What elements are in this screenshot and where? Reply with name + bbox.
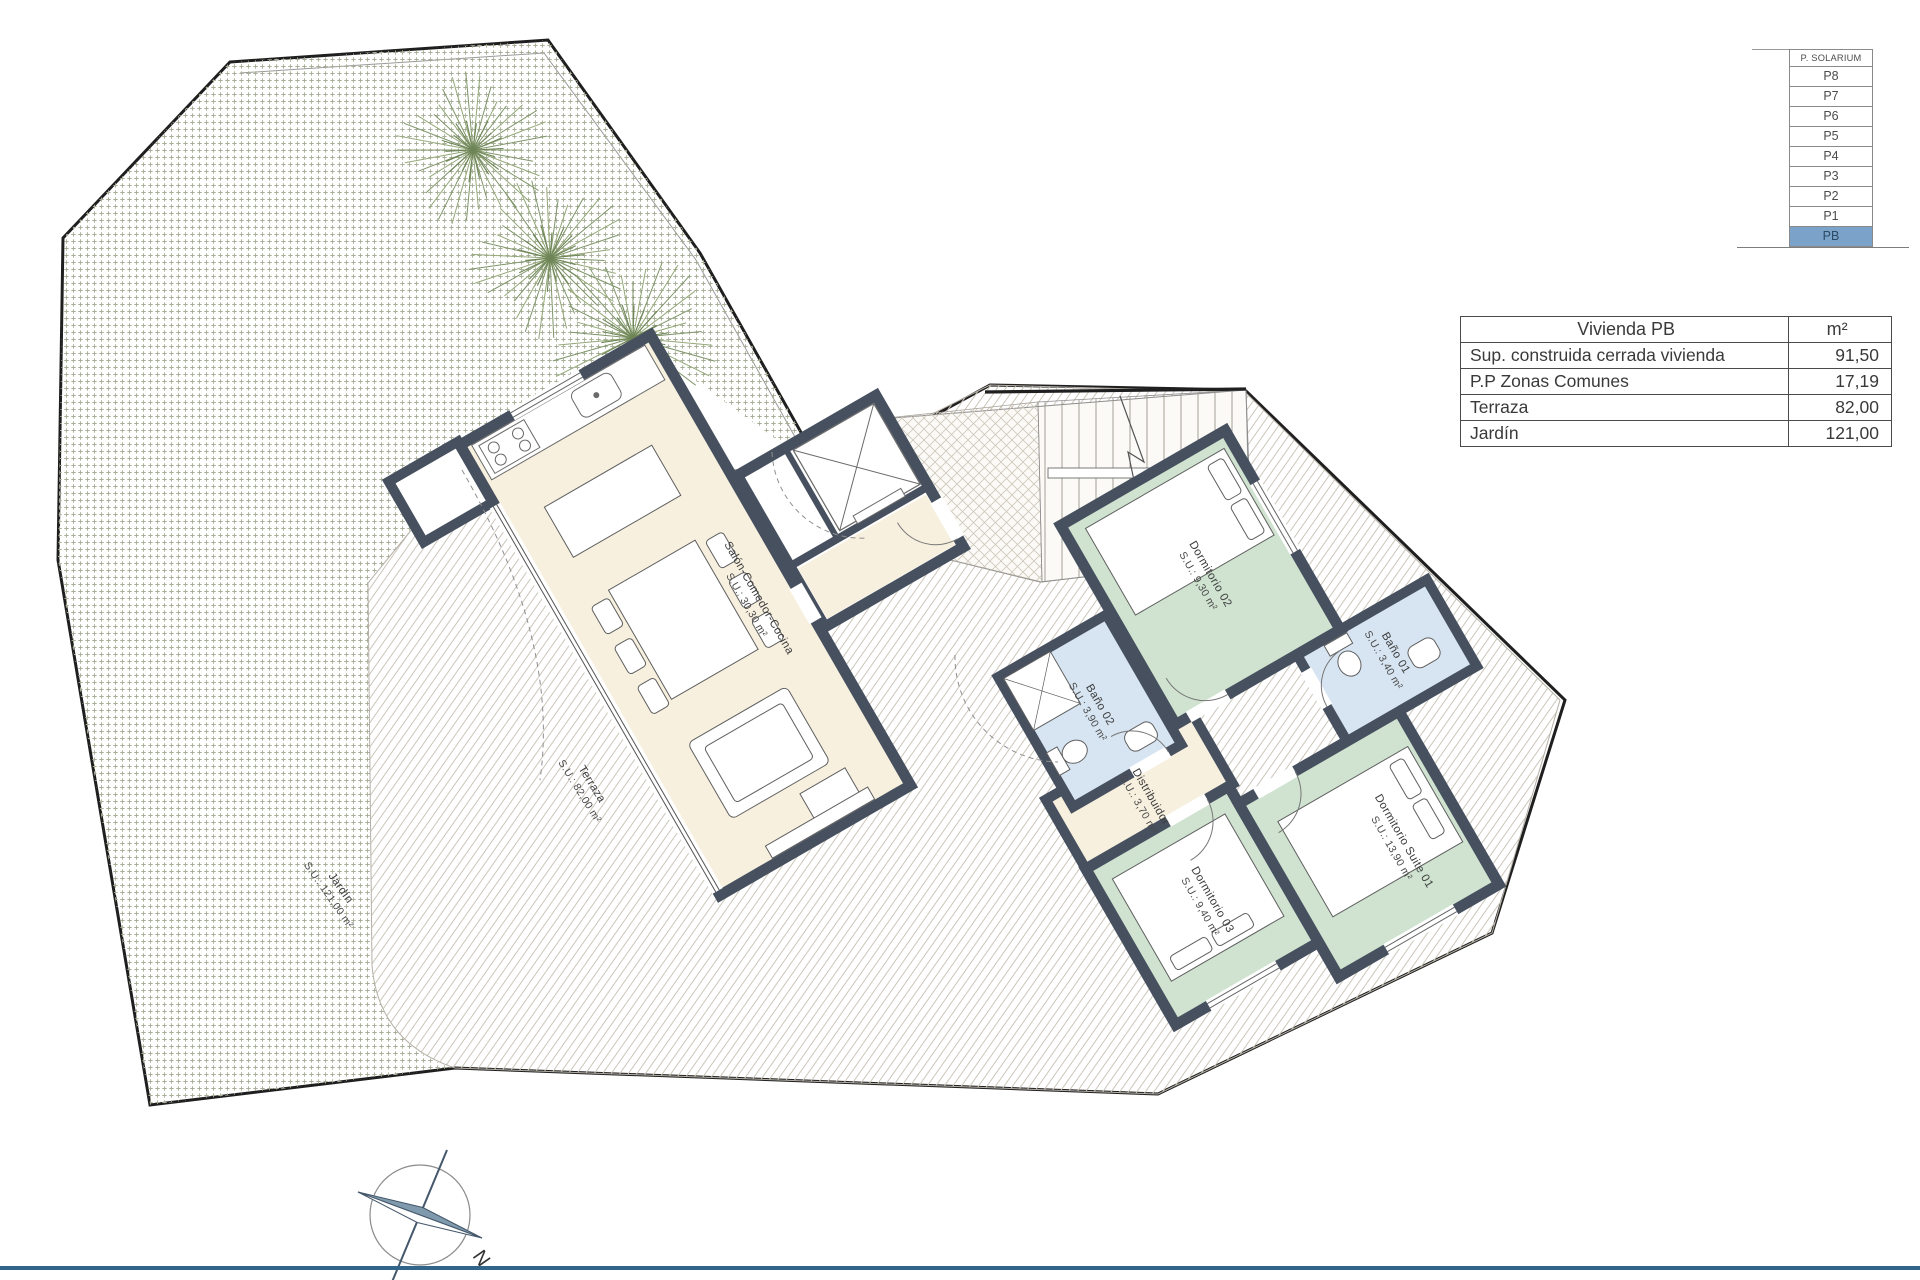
floor-item-p6[interactable]: P6 [1789,107,1873,127]
row-value: 82,00 [1789,395,1892,421]
row-value: 91,50 [1789,343,1892,369]
floor-selector-title: P. SOLARIUM [1789,49,1873,67]
table-row: Terraza 82,00 [1461,395,1892,421]
compass-rose: N [358,1150,494,1280]
floor-item-p2[interactable]: P2 [1789,187,1873,207]
table-row: Jardín 121,00 [1461,421,1892,447]
floor-item-p5[interactable]: P5 [1789,127,1873,147]
floor-selector: P. SOLARIUM P8 P7 P6 P5 P4 P3 P2 P1 PB [1789,49,1873,247]
row-label: P.P Zonas Comunes [1461,369,1789,395]
floor-item-p4[interactable]: P4 [1789,147,1873,167]
area-table: Vivienda PB m² Sup. construida cerrada v… [1460,316,1892,447]
table-row: Sup. construida cerrada vivienda 91,50 [1461,343,1892,369]
plan-sheet: Salón-Comedor-Cocina S.U.: 30,30 m² Dorm… [0,0,1920,1280]
area-table-unit-header: m² [1789,317,1892,343]
floor-item-p3[interactable]: P3 [1789,167,1873,187]
row-label: Jardín [1461,421,1789,447]
floor-selector-top-line [1752,49,1790,50]
floor-selector-ground-line [1737,247,1909,248]
floor-item-p1[interactable]: P1 [1789,207,1873,227]
compass-needle-light [358,1192,482,1238]
table-row: P.P Zonas Comunes 17,19 [1461,369,1892,395]
floor-item-pb[interactable]: PB [1789,227,1873,247]
sheet-footer-line [0,1266,1920,1270]
row-label: Terraza [1461,395,1789,421]
row-value: 121,00 [1789,421,1892,447]
floor-item-p7[interactable]: P7 [1789,87,1873,107]
row-label: Sup. construida cerrada vivienda [1461,343,1789,369]
floor-plan-canvas: Salón-Comedor-Cocina S.U.: 30,30 m² Dorm… [0,0,1920,1280]
area-table-title: Vivienda PB [1461,317,1789,343]
row-value: 17,19 [1789,369,1892,395]
floor-item-p8[interactable]: P8 [1789,67,1873,87]
